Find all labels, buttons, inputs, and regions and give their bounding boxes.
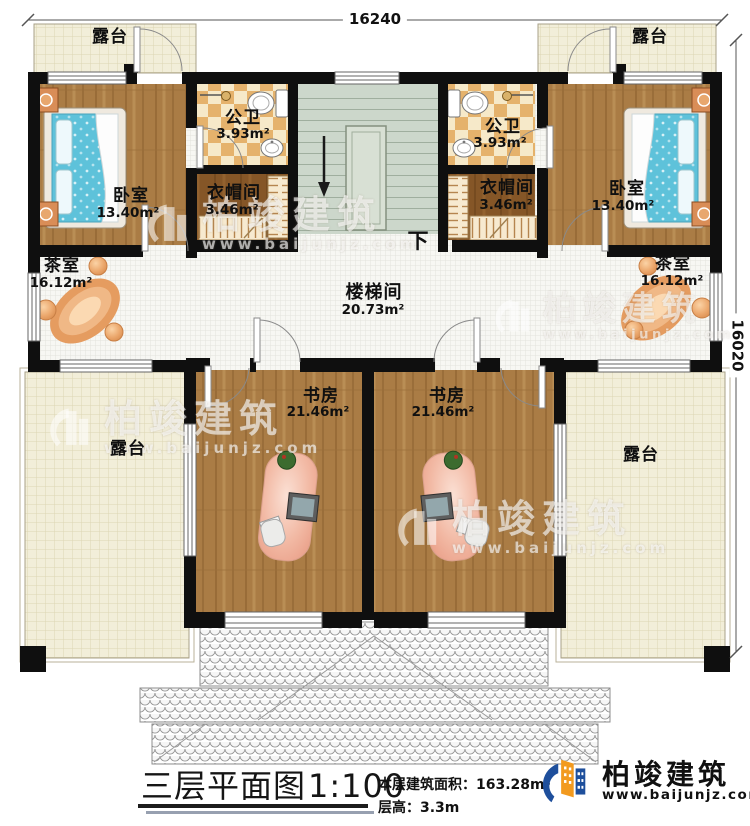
room-area-bath-l: 3.93m² (216, 128, 269, 142)
floor-area-text: 本层建筑面积：163.28m² (378, 778, 551, 792)
stool-icon (692, 298, 712, 318)
wall-segment (184, 612, 225, 628)
room-area-stair-hall: 20.73m² (342, 304, 405, 318)
room-label-cloak-l: 衣帽间 (207, 185, 261, 202)
terrace-br-floor (561, 372, 725, 658)
room-label-terrace-tr: 露台 (632, 29, 668, 46)
wall-segment (28, 72, 48, 84)
window-icon (554, 424, 566, 556)
stool-icon (625, 321, 643, 339)
window-icon (710, 273, 722, 341)
wall-segment (186, 84, 197, 128)
wall-segment (554, 556, 566, 614)
wall-segment (322, 612, 362, 628)
wall-segment (28, 360, 60, 372)
dimension-right: 16020 (730, 313, 745, 377)
room-label-bath-r: 公卫 (485, 119, 521, 136)
wall-segment (288, 84, 298, 252)
wall-segment (613, 72, 624, 84)
window-icon (60, 360, 152, 372)
room-label-bedroom-r: 卧室 (609, 181, 645, 198)
wall-segment (537, 84, 548, 128)
terrace-tr-floor (538, 24, 716, 73)
wall-segment (184, 372, 196, 424)
wall-segment (126, 72, 137, 84)
floor-plan-drawing (0, 0, 750, 826)
wall-segment (710, 84, 722, 273)
wall-segment (186, 240, 298, 252)
dimension-top: 16240 (343, 12, 407, 27)
window-icon (598, 360, 690, 372)
wall-segment (28, 84, 40, 273)
wall-segment (362, 362, 374, 620)
wall-segment (182, 72, 335, 84)
room-area-tea-l: 16.12m² (30, 277, 93, 291)
room-area-study-r: 21.46m² (412, 406, 475, 420)
roof-tiles (140, 622, 610, 764)
brand-logo: 柏竣建筑 www.baijunjz.com (536, 752, 750, 810)
terrace-bl-floor (25, 372, 189, 658)
title-underline (138, 804, 368, 808)
column (20, 646, 46, 672)
stool-icon (105, 323, 123, 341)
room-label-bath-l: 公卫 (225, 110, 261, 127)
stairs-down-label: 下 (408, 231, 429, 252)
wall-segment (525, 612, 566, 628)
floor-plan-canvas: 16240 16020 柏竣建筑 www.baijunjz.com 柏竣建筑 w… (0, 0, 750, 826)
room-area-study-l: 21.46m² (287, 406, 350, 420)
wall-segment (152, 360, 186, 372)
wall-segment (399, 72, 568, 84)
wall-segment (702, 72, 722, 84)
brand-name: 柏竣建筑 (602, 760, 750, 789)
room-area-bath-r: 3.93m² (473, 137, 526, 151)
room-area-tea-r: 16.12m² (641, 275, 704, 289)
window-icon (184, 424, 196, 556)
brand-url: www.baijunjz.com (602, 789, 750, 803)
window-icon (428, 612, 525, 628)
column (704, 646, 730, 672)
room-label-tea-r: 茶室 (655, 256, 691, 273)
brand-logo-icon (536, 752, 594, 810)
wall-segment (554, 372, 566, 424)
room-area-bedroom-l: 13.40m² (97, 207, 160, 221)
wall-segment (690, 360, 722, 372)
stairs-icon (298, 95, 438, 234)
room-label-study-r: 书房 (429, 388, 465, 405)
room-label-terrace-bl: 露台 (110, 441, 146, 458)
wall-segment (438, 84, 448, 252)
window-icon (225, 612, 322, 628)
plan-title: 三层平面图1:100 (141, 770, 405, 802)
wall-segment (448, 165, 535, 174)
room-label-study-l: 书房 (303, 388, 339, 405)
wall-segment (564, 360, 598, 372)
room-label-terrace-tl: 露台 (92, 29, 128, 46)
plan-title-text: 三层平面图 (141, 767, 306, 805)
sink-r-icon (453, 139, 475, 157)
window-icon (624, 72, 702, 84)
wall-segment (184, 556, 196, 614)
wall-segment (452, 240, 548, 252)
room-area-cloak-l: 3.46m² (205, 204, 258, 218)
room-area-cloak-r: 3.46m² (479, 199, 532, 213)
window-icon (335, 72, 399, 84)
window-icon (48, 72, 126, 84)
room-label-bedroom-l: 卧室 (113, 188, 149, 205)
room-label-tea-l: 茶室 (44, 258, 80, 275)
room-label-terrace-br: 露台 (623, 447, 659, 464)
floor-height-text: 层高：3.3m (378, 801, 459, 815)
wall-segment (374, 612, 428, 628)
room-area-bedroom-r: 13.40m² (592, 200, 655, 214)
title-underline-2 (146, 811, 374, 814)
room-label-cloak-r: 衣帽间 (480, 180, 534, 197)
stool-icon (89, 257, 107, 275)
room-label-stair-hall: 楼梯间 (346, 284, 403, 302)
